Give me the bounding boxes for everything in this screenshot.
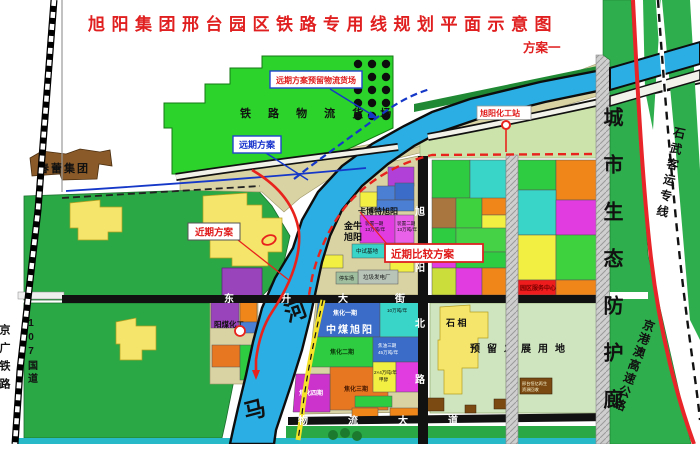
block-grid-west [432,160,506,295]
yangmei-orange2 [212,345,240,367]
block-green-strip [355,396,392,407]
bottom-teal-strip [18,438,612,444]
small-box-1 [427,398,444,411]
jinniu-label-1: 金牛 [343,220,362,231]
parking-label: 停车场 [339,275,354,282]
station-circle-icon [502,121,510,129]
cabot-label: 卡博特旭阳 [358,206,398,216]
tar3-line2: 45万吨/年 [378,349,399,356]
planning-map: 铁 路 物 流 货 场 春蕾集团 卡博特旭阳 金牛 旭阳 装置一期 13万吨/年… [0,0,700,444]
chunlei-label: 春蕾集团 [38,161,90,175]
block-blue-b [395,183,414,200]
methanol-line2: 甲醇 [379,376,389,383]
mid-gray-road [506,155,518,444]
reserved-parcel-east [518,303,598,413]
coking4-label: 焦化四期 [298,389,323,397]
g107-label: 107国道 [26,318,38,386]
scheme-label: 方案一 [523,40,561,55]
benzene-label: 10万吨/年 [387,307,408,314]
station-label: 旭阳化工站 [479,108,520,118]
recycle-line2: 资源回收 [522,386,540,393]
reserve-yard-label: 远期方案预留物流货场 [276,75,356,85]
coking3-label: 焦化三期 [343,385,368,393]
shixiang-label: 石 相 [445,317,467,328]
jinniu-label-2: 旭阳 [343,231,362,242]
jingguang-label: 京广铁路 [0,323,11,396]
map-title: 旭阳集团邢台园区铁路专用线规划平面示意图 [87,14,558,34]
recycle-line1: 邢台恒亿再生 [522,380,547,387]
waste-power-label: 垃圾发电厂 [363,273,391,281]
reserved-land-label: 预留发展用地 [470,342,572,355]
nearterm-label: 近期方案 [195,227,234,239]
service-center-label: 园区服务中心 [520,284,556,292]
compare-label: 近期比较方案 [391,248,454,261]
zhongmei-label: 中煤旭阳 [326,323,374,336]
methanol-line1: 2×4万吨/年 [374,369,397,376]
block-grid-east [518,160,598,295]
block-blue-a [377,186,395,200]
block-yellow-a [360,192,377,207]
small-box-2 [465,405,476,413]
wuliu-label: 物流大道 [298,414,498,427]
coking1-label: 焦化一期 [332,309,357,317]
coking2-label: 焦化二期 [329,348,354,356]
longterm-label: 远期方案 [239,139,276,150]
red-marker-circle [235,326,245,336]
pilot-base-label: 中试基地 [356,247,379,255]
tar3-line1: 焦油三期 [378,342,397,349]
